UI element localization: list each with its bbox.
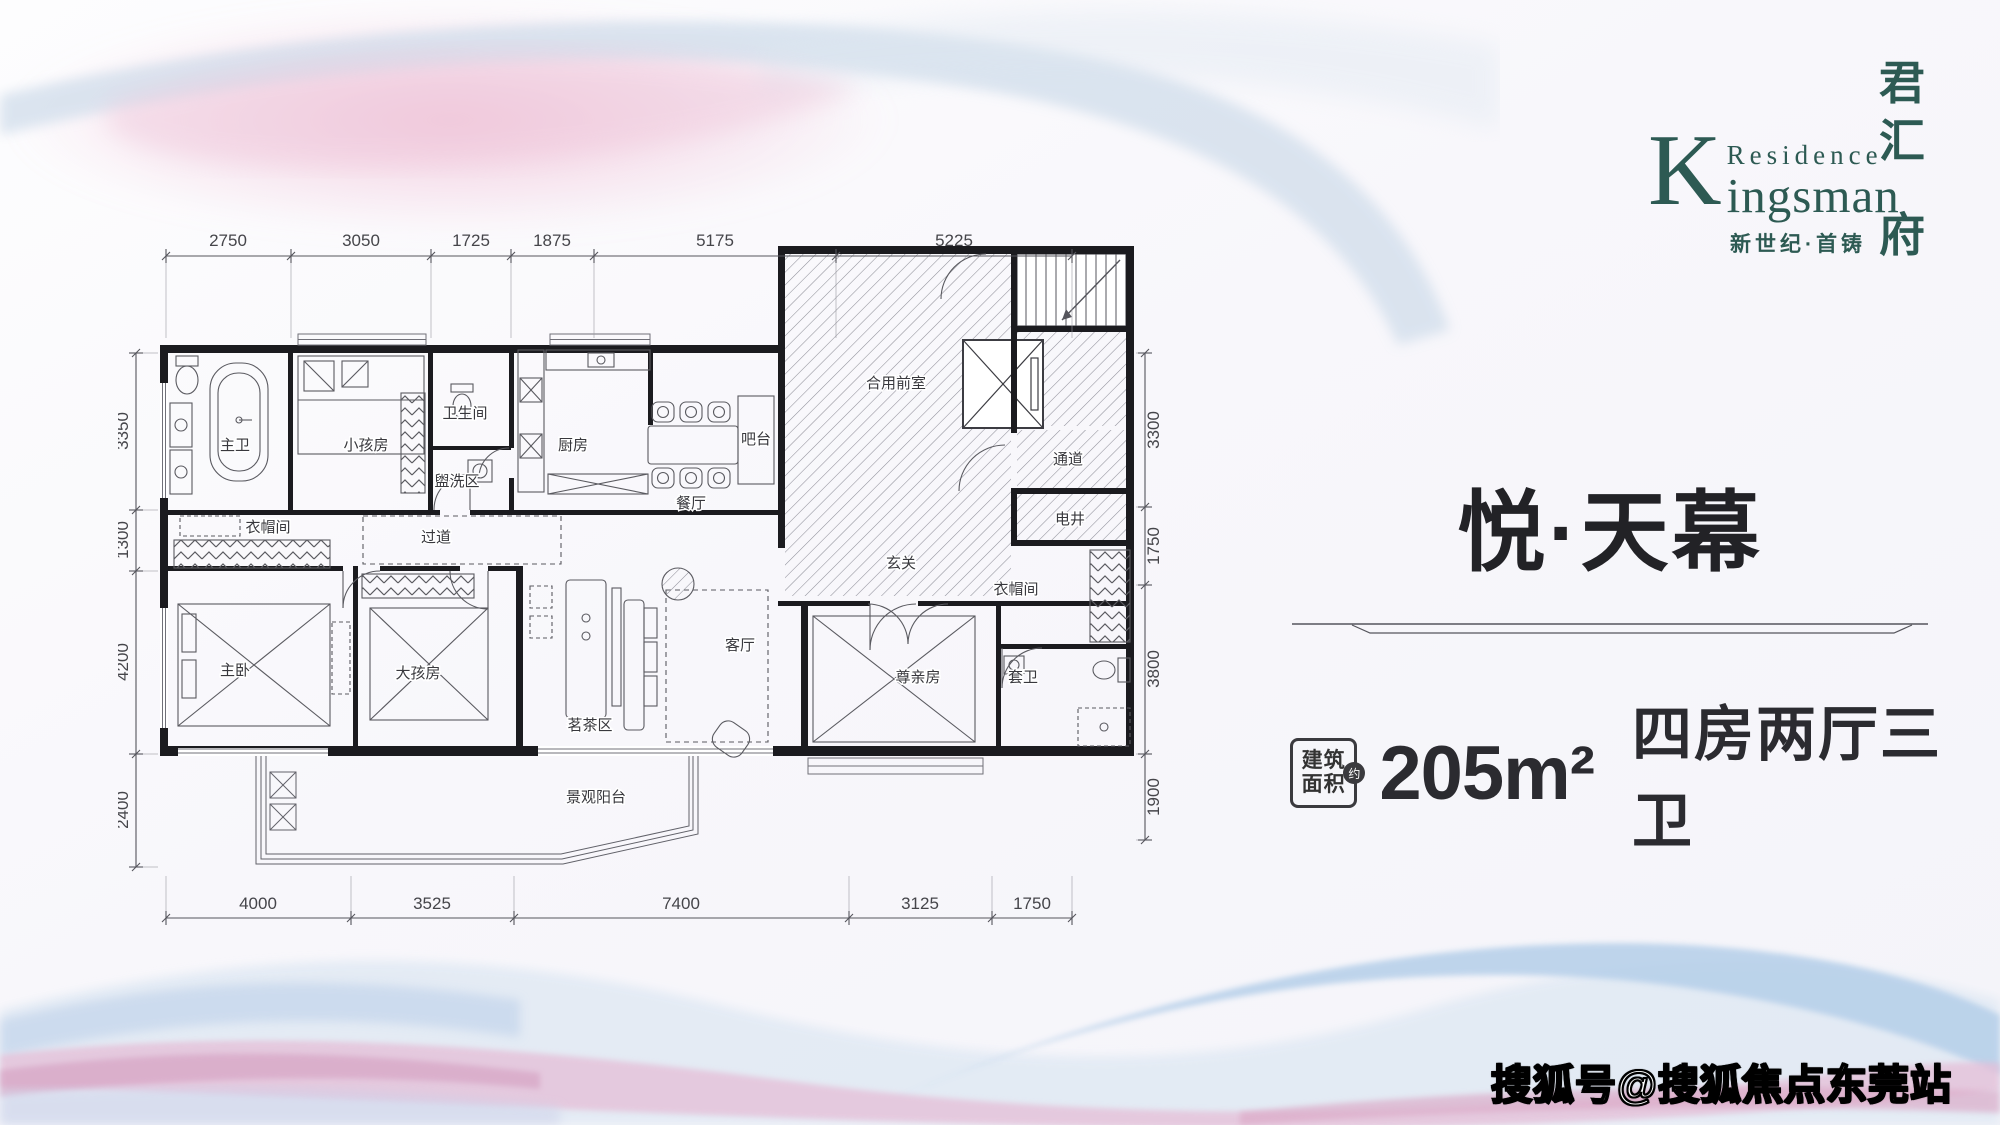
area-approx-circle: 约 (1343, 762, 1365, 784)
room-label: 客厅 (725, 637, 755, 654)
logo-chinese-vertical: 君汇府 (1876, 60, 1928, 258)
brand-logo: K Residence ingsman 新世纪·首铸 君汇府 (1648, 52, 1958, 282)
dim-label: 3350 (118, 412, 132, 450)
logo-chinese-char: 汇 (1879, 118, 1925, 164)
room-label: 通道 (1053, 451, 1083, 468)
room-label: 衣帽间 (245, 519, 290, 536)
logo-chinese-char: 君 (1879, 60, 1925, 106)
room-label: 小孩房 (343, 437, 388, 454)
watermark: 搜狐号@搜狐焦点东莞站 (1491, 1051, 1952, 1111)
balcony-railing (256, 756, 698, 864)
logo-residence-text: Residence (1727, 142, 1900, 169)
dim-label: 1725 (452, 231, 490, 250)
area-badge-line1: 建筑 (1302, 749, 1346, 773)
room-label: 盥洗区 (434, 473, 479, 490)
brand-logo-english: K Residence ingsman (1648, 134, 1900, 220)
dimension-labels-right: 3300175038001900 (1144, 411, 1163, 816)
spec-row: 建筑 面积 约 205m² 四房两厅三卫 (1290, 686, 2000, 860)
dimension-labels-left: 3350130042002400 (118, 412, 132, 829)
room-label: 尊亲房 (895, 669, 940, 686)
dim-label: 1875 (533, 231, 571, 250)
room-label: 茗茶区 (567, 717, 612, 734)
logo-wordmark-column: Residence ingsman (1727, 134, 1900, 220)
dim-label: 1750 (1144, 527, 1163, 565)
dim-label: 3050 (342, 231, 380, 250)
room-label: 主卫 (220, 437, 250, 454)
room-label: 过道 (421, 529, 451, 546)
dim-label: 1300 (118, 521, 132, 559)
dim-label: 7400 (662, 894, 700, 913)
dim-label: 1900 (1144, 778, 1163, 816)
room-label: 衣帽间 (993, 581, 1038, 598)
dim-label: 3800 (1144, 650, 1163, 688)
area-badge-line2: 面积 (1302, 773, 1346, 797)
dim-label: 4200 (118, 643, 132, 681)
dim-label: 2750 (209, 231, 247, 250)
room-label: 套卫 (1008, 669, 1038, 686)
dim-label: 4000 (239, 894, 277, 913)
room-label: 主卧 (220, 662, 250, 679)
dim-label: 5225 (935, 231, 973, 250)
room-label: 大孩房 (395, 665, 440, 682)
logo-k-letter: K (1648, 134, 1722, 207)
logo-tagline: 新世纪·首铸 (1730, 228, 1866, 258)
dim-label: 3125 (901, 894, 939, 913)
logo-ingsman-text: ingsman (1727, 171, 1900, 220)
room-label: 吧台 (741, 431, 771, 448)
dim-label: 5175 (696, 231, 734, 250)
stairs (1017, 254, 1126, 326)
elevator (963, 340, 1043, 428)
room-label: 景观阳台 (566, 789, 626, 806)
area-badge: 建筑 面积 约 (1290, 738, 1357, 808)
dim-label: 3525 (413, 894, 451, 913)
area-value: 205m² (1379, 730, 1594, 817)
unit-title: 悦·天幕 (1290, 462, 1930, 589)
dim-label: 2400 (118, 791, 132, 829)
layout-description: 四房两厅三卫 (1632, 686, 2000, 860)
room-label: 电井 (1055, 511, 1085, 528)
dimension-labels-bottom: 40003525740031251750 (239, 894, 1051, 913)
dim-label: 3300 (1144, 411, 1163, 449)
floor-plan: 275030501725187551755225 400035257400312… (118, 188, 1178, 968)
room-label: 厨房 (558, 437, 588, 454)
title-divider (1290, 620, 1930, 646)
dim-label: 1750 (1013, 894, 1051, 913)
room-label: 餐厅 (676, 495, 706, 512)
logo-chinese-char: 府 (1879, 212, 1925, 258)
room-label: 合用前室 (866, 375, 926, 392)
room-label: 玄关 (886, 555, 916, 572)
poster: { "logo": { "k": "K", "residence": "Resi… (0, 0, 2000, 1125)
room-label: 卫生间 (442, 405, 487, 422)
